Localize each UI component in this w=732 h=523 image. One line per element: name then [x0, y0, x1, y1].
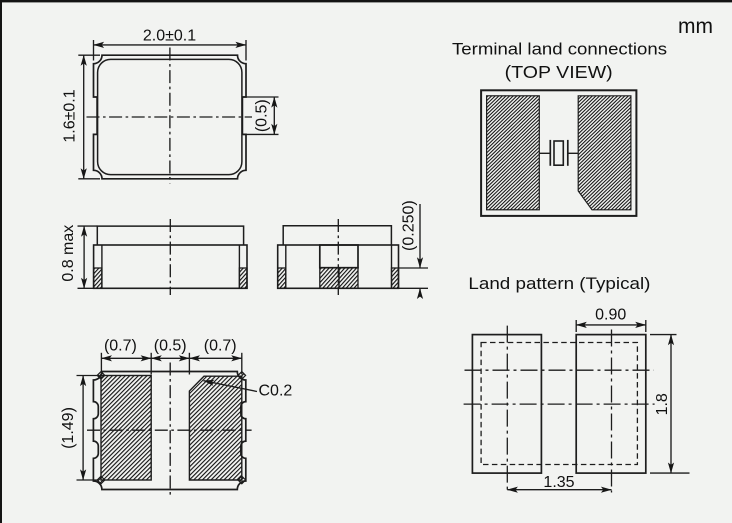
svg-text:1.8: 1.8	[654, 393, 671, 415]
svg-text:(0.5): (0.5)	[253, 99, 270, 132]
svg-text:1.35: 1.35	[543, 474, 574, 491]
svg-text:1.6±0.1: 1.6±0.1	[61, 89, 78, 142]
svg-text:mm: mm	[678, 15, 713, 38]
svg-text:C0.2: C0.2	[259, 383, 293, 400]
svg-text:2.0±0.1: 2.0±0.1	[143, 27, 196, 44]
svg-text:0.90: 0.90	[595, 306, 626, 323]
svg-text:(1.49): (1.49)	[60, 407, 77, 449]
svg-text:Land pattern (Typical): Land pattern (Typical)	[468, 274, 650, 293]
svg-text:Terminal land connections: Terminal land connections	[452, 40, 667, 59]
svg-text:(0.7): (0.7)	[204, 337, 237, 354]
svg-text:0.8 max: 0.8 max	[60, 225, 77, 282]
svg-text:(TOP VIEW): (TOP VIEW)	[505, 62, 613, 82]
svg-text:(0.5): (0.5)	[154, 337, 187, 354]
svg-text:(0.7): (0.7)	[104, 337, 137, 354]
svg-text:(0.250): (0.250)	[401, 200, 418, 251]
